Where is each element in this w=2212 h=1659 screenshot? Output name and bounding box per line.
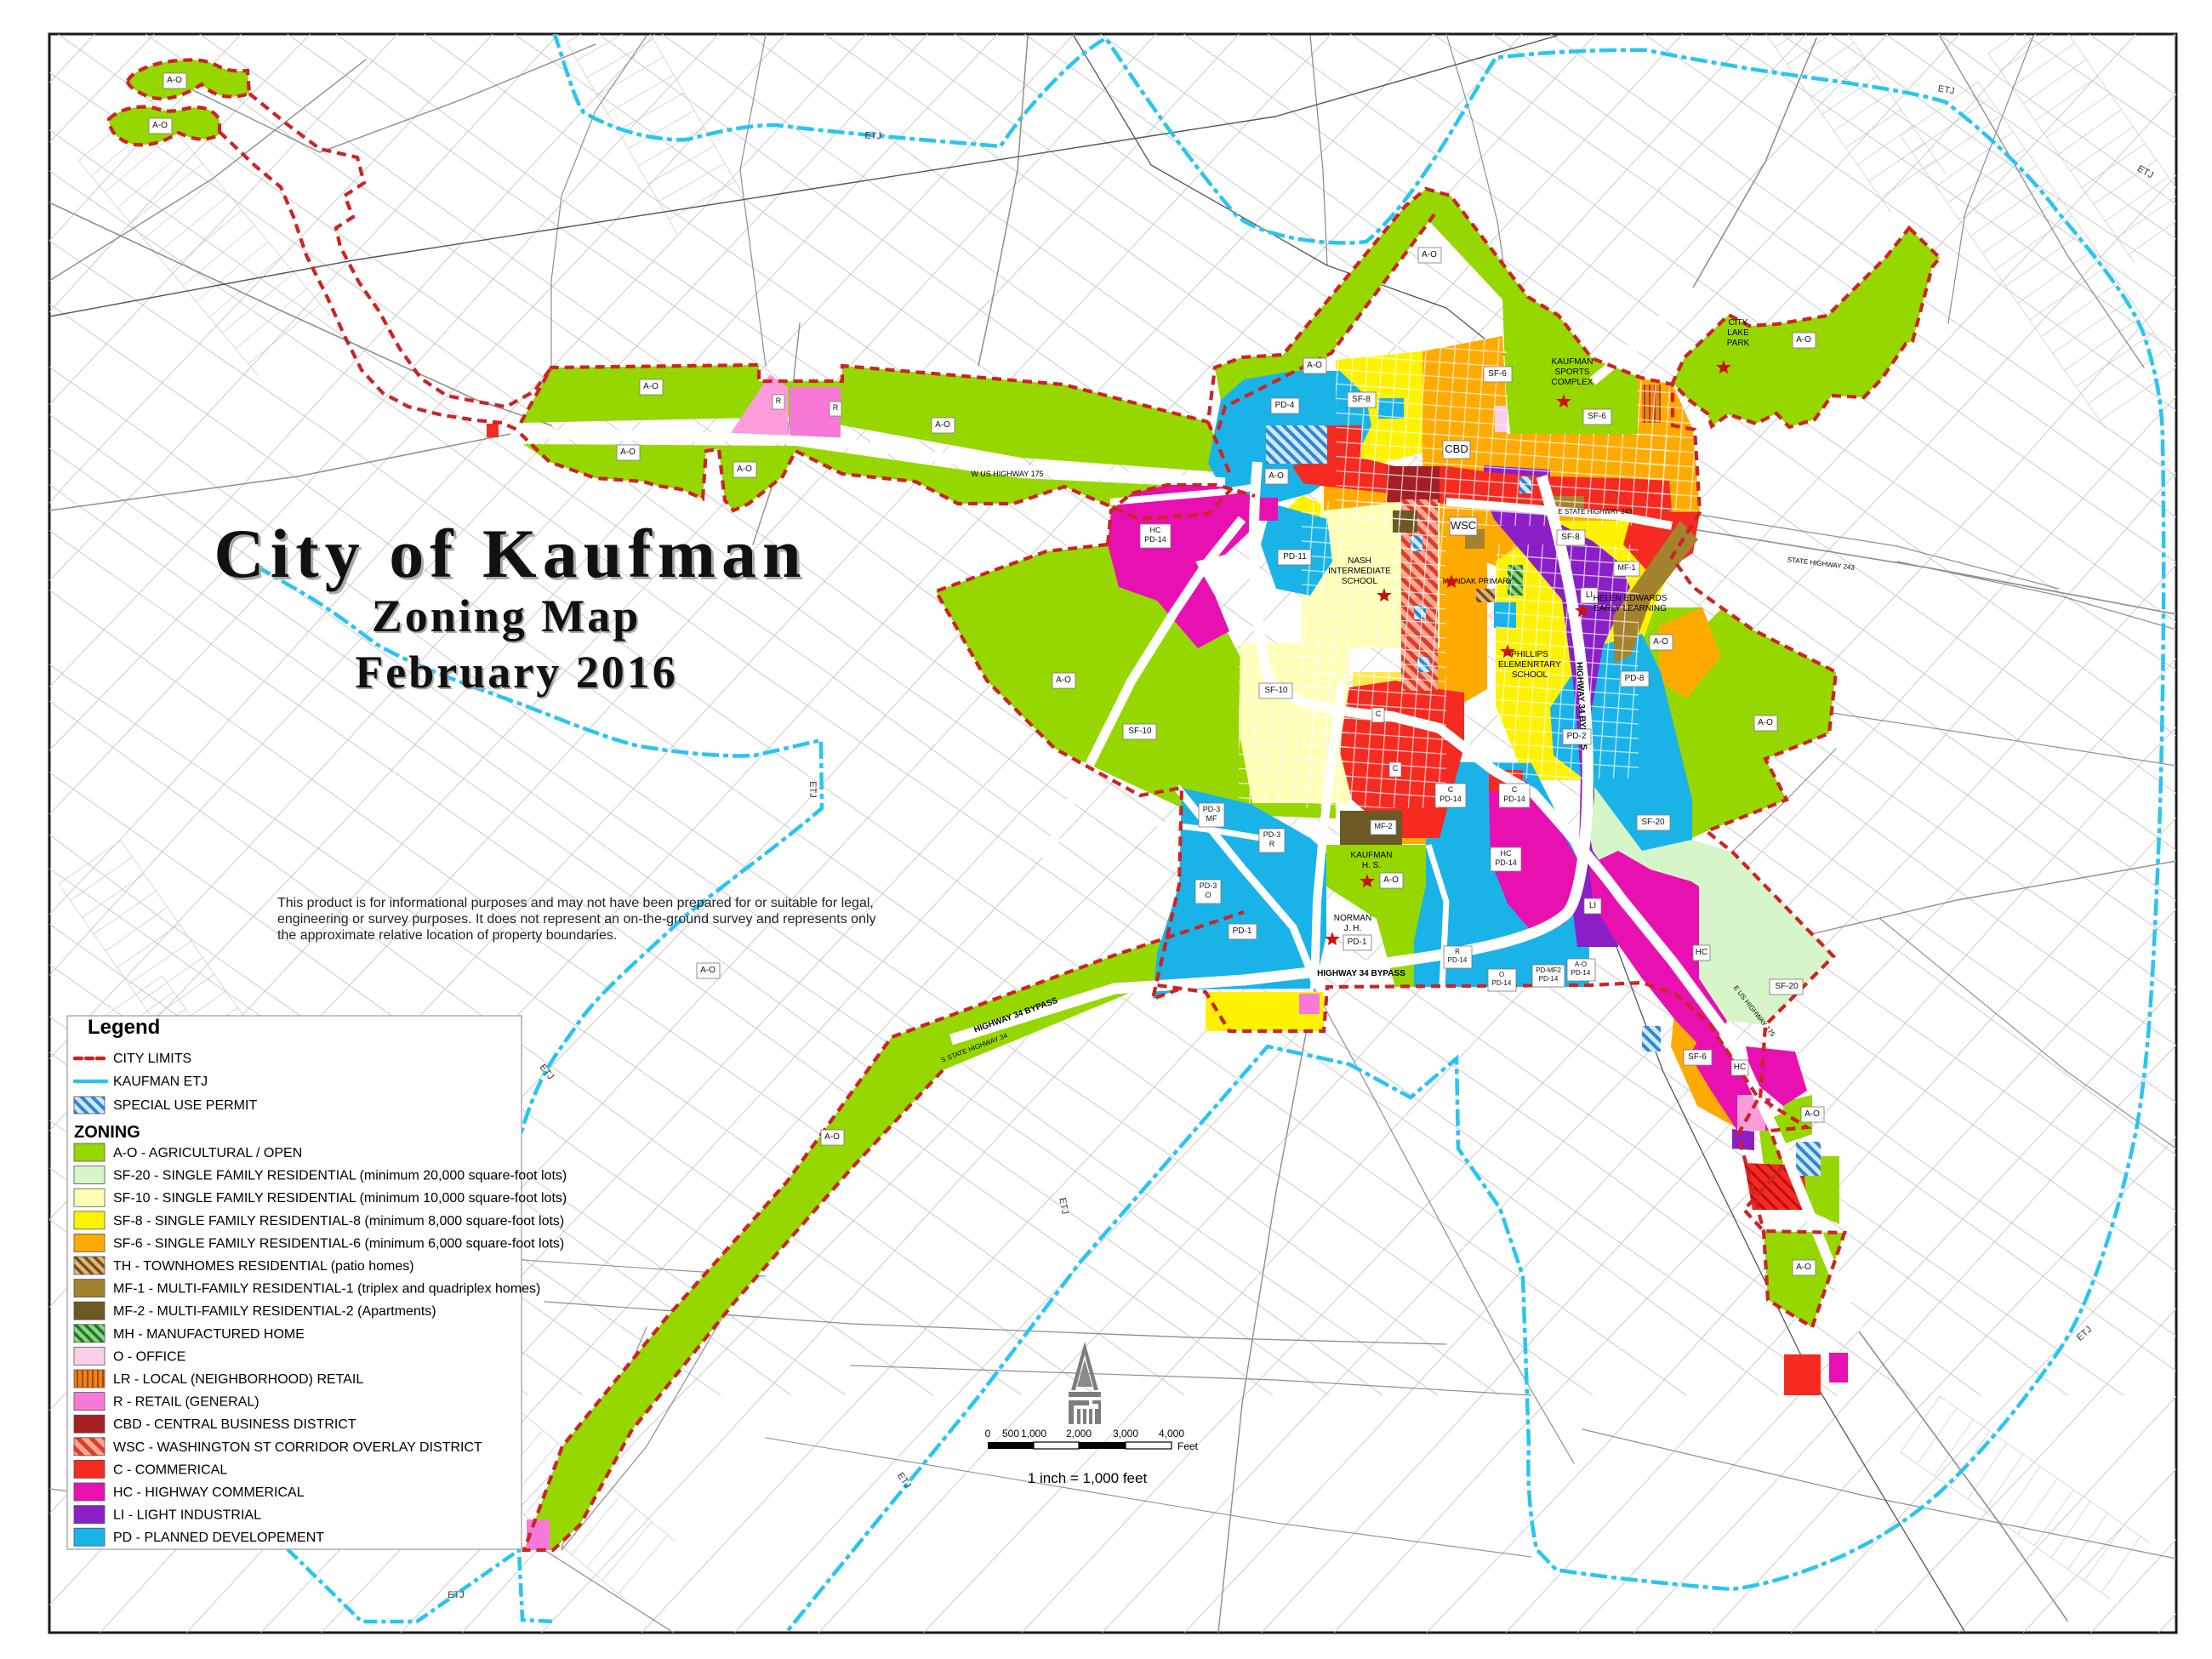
svg-text:February 2016: February 2016 — [355, 647, 677, 698]
svg-text:CITY: CITY — [1729, 318, 1748, 328]
svg-text:MF: MF — [1206, 814, 1217, 823]
svg-text:PD-14: PD-14 — [1144, 535, 1166, 544]
svg-text:A-O: A-O — [1796, 1263, 1811, 1272]
svg-text:SF-10: SF-10 — [1128, 727, 1152, 736]
svg-text:W US HIGHWAY 175: W US HIGHWAY 175 — [971, 470, 1043, 478]
svg-text:KAUFMAN: KAUFMAN — [1552, 357, 1593, 367]
svg-text:PD-3: PD-3 — [1203, 805, 1221, 813]
svg-text:R: R — [776, 396, 782, 405]
svg-text:HC: HC — [1696, 948, 1707, 957]
svg-text:MH - MANUFACTURED HOME: MH - MANUFACTURED HOME — [113, 1327, 305, 1342]
svg-text:C: C — [1512, 785, 1518, 794]
svg-text:E STATE HIGHWAY 243: E STATE HIGHWAY 243 — [1558, 508, 1633, 516]
svg-text:engineering or survey purposes: engineering or survey purposes. It does … — [277, 912, 876, 926]
svg-text:SF-6: SF-6 — [1688, 1052, 1707, 1062]
svg-text:PHILLIPS: PHILLIPS — [1511, 650, 1548, 659]
svg-text:MF-1: MF-1 — [1618, 563, 1636, 572]
svg-text:PD-14: PD-14 — [1492, 979, 1512, 987]
svg-text:2,000: 2,000 — [1066, 1428, 1092, 1440]
svg-text:SF-8: SF-8 — [1561, 533, 1580, 542]
svg-text:PD-11: PD-11 — [1283, 552, 1307, 562]
svg-text:A-O: A-O — [1056, 676, 1071, 685]
svg-text:CBD - CENTRAL BUSINESS DISTRIC: CBD - CENTRAL BUSINESS DISTRICT — [113, 1417, 356, 1432]
svg-text:City of Kaufman: City of Kaufman — [214, 515, 807, 592]
svg-text:PD-14: PD-14 — [1503, 795, 1525, 803]
svg-text:ELEMENRTARY: ELEMENRTARY — [1498, 660, 1561, 670]
svg-text:R: R — [833, 403, 839, 412]
svg-text:O: O — [1499, 971, 1504, 978]
svg-text:PD-14: PD-14 — [1571, 969, 1591, 977]
svg-text:PD-1: PD-1 — [1348, 938, 1367, 947]
svg-text:SF-10: SF-10 — [1264, 686, 1288, 695]
svg-text:C: C — [1376, 710, 1382, 718]
svg-text:PD-8: PD-8 — [1625, 674, 1645, 683]
svg-text:NORMAN: NORMAN — [1334, 914, 1371, 923]
svg-text:A-O: A-O — [1653, 637, 1668, 647]
svg-text:A-O: A-O — [620, 448, 636, 457]
svg-text:A-O: A-O — [700, 966, 715, 975]
svg-text:LR - LOCAL (NEIGHBORHOOD) RETA: LR - LOCAL (NEIGHBORHOOD) RETAIL — [113, 1372, 363, 1387]
svg-text:CBD: CBD — [1445, 442, 1468, 455]
svg-text:R - RETAIL (GENERAL): R - RETAIL (GENERAL) — [113, 1395, 259, 1410]
svg-text:HC: HC — [1734, 1063, 1746, 1072]
svg-text:EARLY LEARNING: EARLY LEARNING — [1593, 604, 1667, 613]
svg-text:1,000: 1,000 — [1021, 1428, 1046, 1440]
svg-text:NASH: NASH — [1348, 556, 1371, 566]
svg-text:HELEN EDWARDS: HELEN EDWARDS — [1593, 594, 1668, 603]
svg-text:R: R — [1455, 948, 1460, 955]
svg-text:PD-14: PD-14 — [1440, 795, 1462, 803]
svg-text:SCHOOL: SCHOOL — [1342, 577, 1378, 586]
svg-text:SF-20 - SINGLE FAMILY RESIDENT: SF-20 - SINGLE FAMILY RESIDENTIAL (minim… — [113, 1169, 567, 1183]
svg-text:O - OFFICE: O - OFFICE — [113, 1349, 185, 1364]
svg-text:500: 500 — [1002, 1428, 1019, 1440]
svg-text:A-O - AGRICULTURAL / OPEN: A-O - AGRICULTURAL / OPEN — [113, 1146, 302, 1160]
svg-text:ETJ: ETJ — [807, 781, 818, 798]
svg-text:3,000: 3,000 — [1113, 1428, 1138, 1440]
svg-text:the approximate relative locat: the approximate relative location of pro… — [277, 928, 617, 943]
svg-text:PD-4: PD-4 — [1275, 401, 1295, 410]
svg-text:SF-8 - SINGLE FAMILY RESIDENTI: SF-8 - SINGLE FAMILY RESIDENTIAL-8 (mini… — [113, 1214, 564, 1229]
svg-text:C - COMMERICAL: C - COMMERICAL — [113, 1462, 227, 1477]
svg-text:PARK: PARK — [1727, 339, 1750, 348]
svg-text:KAUFMAN: KAUFMAN — [1351, 851, 1393, 860]
svg-text:HC: HC — [1501, 849, 1512, 858]
svg-text:PD-14: PD-14 — [1495, 858, 1517, 867]
svg-text:H. S.: H. S. — [1362, 861, 1381, 870]
svg-text:A-O: A-O — [935, 420, 950, 430]
svg-text:LI: LI — [1589, 901, 1596, 910]
svg-text:R: R — [1269, 840, 1275, 848]
svg-text:A-O: A-O — [1268, 471, 1284, 481]
svg-text:C: C — [1448, 785, 1454, 794]
svg-text:SCHOOL: SCHOOL — [1512, 670, 1548, 680]
svg-text:Feet: Feet — [1177, 1440, 1199, 1452]
svg-text:A-O: A-O — [737, 465, 752, 474]
svg-text:A-O: A-O — [1796, 335, 1811, 345]
svg-text:A-O: A-O — [1575, 961, 1587, 968]
svg-text:PD-1: PD-1 — [1233, 926, 1252, 936]
svg-text:A-O: A-O — [643, 382, 658, 391]
svg-text:MF-2 - MULTI-FAMILY RESIDENTIA: MF-2 - MULTI-FAMILY RESIDENTIAL-2 (Apart… — [113, 1304, 436, 1319]
svg-text:HIGHWAY 34 BYPASS: HIGHWAY 34 BYPASS — [1317, 969, 1405, 978]
svg-text:A-O: A-O — [1804, 1109, 1820, 1119]
svg-text:MF-2: MF-2 — [1375, 822, 1393, 830]
svg-text:PD-MF2: PD-MF2 — [1536, 966, 1561, 974]
svg-text:A-O: A-O — [824, 1132, 840, 1142]
svg-text:J. H.: J. H. — [1344, 924, 1362, 933]
svg-text:A-O: A-O — [1307, 361, 1322, 370]
svg-text:A-O: A-O — [167, 76, 182, 85]
svg-text:1 inch = 1,000 feet: 1 inch = 1,000 feet — [1028, 1470, 1148, 1486]
svg-text:SF-8: SF-8 — [1352, 395, 1371, 404]
svg-text:SF-20: SF-20 — [1641, 818, 1665, 827]
svg-text:TH - TOWNHOMES RESIDENTIAL (pa: TH - TOWNHOMES RESIDENTIAL (patio homes) — [113, 1259, 414, 1274]
svg-text:PD-3: PD-3 — [1263, 830, 1281, 839]
svg-text:SF-6 - SINGLE FAMILY RESIDENTI: SF-6 - SINGLE FAMILY RESIDENTIAL-6 (mini… — [113, 1236, 564, 1251]
svg-text:WSC - WASHINGTON ST CORRIDOR O: WSC - WASHINGTON ST CORRIDOR OVERLAY DIS… — [113, 1440, 482, 1455]
svg-text:A-O: A-O — [152, 121, 168, 130]
svg-text:SPORTS: SPORTS — [1555, 368, 1590, 377]
svg-text:COMPLEX: COMPLEX — [1552, 378, 1593, 387]
svg-text:0: 0 — [985, 1428, 991, 1440]
svg-text:4,000: 4,000 — [1159, 1428, 1184, 1440]
svg-text:O: O — [1205, 891, 1211, 899]
svg-text:ZONING: ZONING — [74, 1123, 140, 1142]
svg-text:MF-1 - MULTI-FAMILY RESIDENTIA: MF-1 - MULTI-FAMILY RESIDENTIAL-1 (tripl… — [113, 1282, 540, 1297]
svg-text:INTERMEDIATE: INTERMEDIATE — [1328, 567, 1391, 576]
svg-text:A-O: A-O — [1758, 718, 1773, 727]
svg-text:KAUFMAN ETJ: KAUFMAN ETJ — [113, 1075, 208, 1089]
svg-text:Zoning Map: Zoning Map — [372, 590, 641, 641]
svg-text:WSC: WSC — [1451, 519, 1476, 532]
svg-text:Legend: Legend — [88, 1016, 160, 1039]
svg-text:HC: HC — [1150, 526, 1161, 534]
svg-text:SF-6: SF-6 — [1588, 412, 1606, 421]
svg-text:PD-2: PD-2 — [1567, 732, 1587, 741]
svg-text:CITY LIMITS: CITY LIMITS — [113, 1052, 191, 1066]
svg-text:SF-20: SF-20 — [1775, 982, 1799, 991]
svg-text:A-O: A-O — [1383, 875, 1399, 885]
svg-text:PD - PLANNED DEVELOPEMENT: PD - PLANNED DEVELOPEMENT — [113, 1531, 324, 1545]
svg-text:ETJ: ETJ — [448, 1590, 465, 1600]
svg-text:PD-14: PD-14 — [1448, 956, 1468, 964]
svg-text:SPECIAL USE PERMIT: SPECIAL USE PERMIT — [113, 1098, 257, 1113]
svg-text:C: C — [1393, 764, 1399, 772]
svg-text:PD-14: PD-14 — [1539, 975, 1559, 983]
svg-text:HC - HIGHWAY COMMERICAL: HC - HIGHWAY COMMERICAL — [113, 1485, 305, 1500]
svg-text:A-O: A-O — [1422, 250, 1437, 259]
svg-text:SF-10 - SINGLE FAMILY RESIDENT: SF-10 - SINGLE FAMILY RESIDENTIAL (minim… — [113, 1191, 567, 1206]
svg-text:ETJ: ETJ — [864, 130, 881, 141]
svg-text:LAKE: LAKE — [1727, 328, 1749, 338]
svg-text:PD-3: PD-3 — [1200, 881, 1217, 890]
svg-text:This product is for informatio: This product is for informational purpos… — [277, 896, 874, 910]
svg-text:SF-6: SF-6 — [1488, 369, 1507, 379]
svg-text:LI - LIGHT INDUSTRIAL: LI - LIGHT INDUSTRIAL — [113, 1508, 261, 1523]
svg-text:LI: LI — [1586, 590, 1593, 600]
